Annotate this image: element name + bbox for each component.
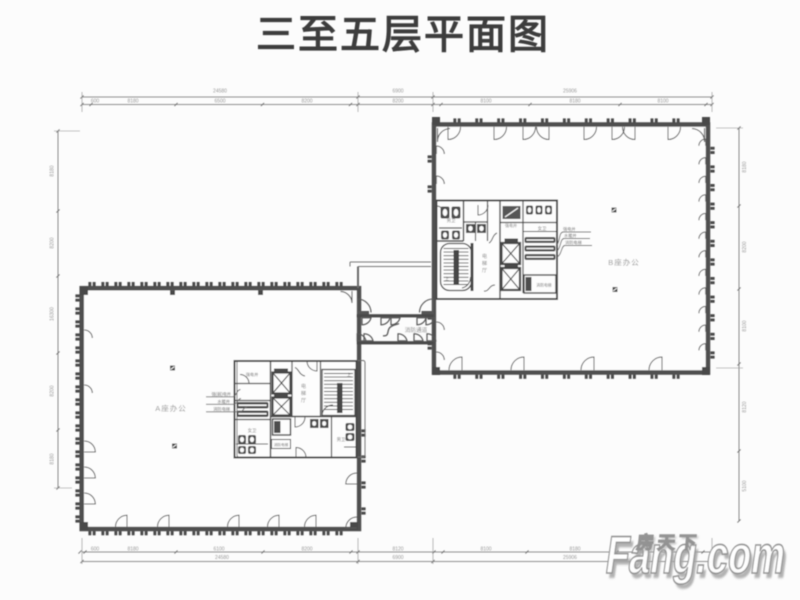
svg-text:600: 600	[91, 546, 100, 552]
svg-text:水暖井: 水暖井	[564, 232, 577, 239]
svg-text:消防电梯: 消防电梯	[274, 442, 289, 447]
svg-text:6500: 6500	[214, 99, 225, 105]
svg-text:8100: 8100	[657, 99, 668, 105]
svg-text:6900: 6900	[392, 88, 403, 94]
svg-text:25906: 25906	[563, 555, 577, 561]
svg-text:6100: 6100	[213, 546, 224, 552]
svg-text:600: 600	[91, 99, 100, 105]
svg-text:消防电梯: 消防电梯	[213, 405, 230, 412]
svg-text:强电井: 强电井	[563, 226, 576, 233]
svg-text:8200: 8200	[50, 385, 56, 396]
svg-text:强(弱)电井: 强(弱)电井	[211, 390, 231, 397]
svg-text:8100: 8100	[480, 99, 491, 105]
svg-text:梯: 梯	[482, 259, 487, 267]
svg-text:A座办公: A座办公	[155, 403, 187, 413]
svg-text:消防电梯: 消防电梯	[536, 283, 551, 288]
svg-text:24580: 24580	[213, 88, 227, 94]
svg-text:8180: 8180	[742, 161, 748, 172]
svg-text:24580: 24580	[215, 555, 229, 561]
svg-text:8200: 8200	[742, 241, 748, 252]
svg-text:8100: 8100	[742, 320, 748, 331]
svg-text:8120: 8120	[742, 401, 748, 412]
svg-text:8180: 8180	[569, 546, 580, 552]
svg-text:消防通道: 消防通道	[405, 326, 428, 334]
svg-text:8200: 8200	[301, 546, 312, 552]
svg-text:5100: 5100	[742, 480, 748, 491]
svg-text:厅: 厅	[482, 267, 487, 274]
svg-text:女卫: 女卫	[248, 427, 257, 434]
svg-text:8120: 8120	[392, 546, 403, 552]
svg-text:强电井: 强电井	[505, 222, 517, 228]
svg-text:强电井: 强电井	[246, 371, 259, 378]
svg-text:8200: 8200	[301, 99, 312, 105]
svg-text:厅: 厅	[301, 397, 306, 404]
svg-text:消防电梯: 消防电梯	[565, 239, 582, 246]
svg-text:8180: 8180	[569, 99, 580, 105]
svg-text:25906: 25906	[563, 88, 577, 94]
svg-text:8200: 8200	[50, 237, 56, 248]
svg-text:房天下: 房天下	[636, 533, 701, 553]
svg-text:梯: 梯	[301, 389, 306, 397]
svg-text:8180: 8180	[50, 453, 56, 464]
svg-text:电: 电	[301, 382, 306, 390]
svg-text:B座办公: B座办公	[608, 257, 640, 267]
svg-text:8100: 8100	[480, 546, 491, 552]
svg-text:8180: 8180	[50, 165, 56, 176]
svg-text:8200: 8200	[392, 99, 403, 105]
svg-text:8180: 8180	[127, 546, 138, 552]
svg-text:16300: 16300	[50, 307, 56, 321]
svg-text:上: 上	[445, 275, 449, 281]
svg-text:三至五层平面图: 三至五层平面图	[256, 13, 550, 57]
svg-text:水暖井: 水暖井	[217, 398, 230, 405]
svg-text:8180: 8180	[127, 99, 138, 105]
svg-text:6900: 6900	[392, 555, 403, 561]
svg-text:电: 电	[482, 252, 487, 260]
svg-text:女卫: 女卫	[538, 225, 547, 232]
svg-text:上: 上	[347, 371, 351, 377]
